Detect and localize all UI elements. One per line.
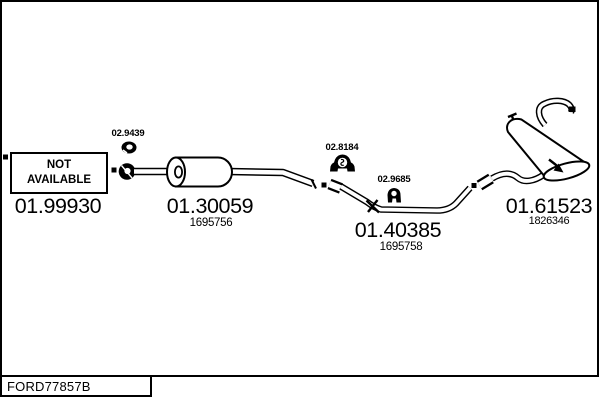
clamp-icon	[122, 142, 137, 154]
part-number-clamp[interactable]: 02.9439	[102, 128, 154, 139]
part-number-rubber-mount[interactable]: 02.8184	[316, 142, 368, 153]
center-muffler-outlet-pipe	[228, 172, 316, 189]
rear-connector-square	[472, 183, 477, 188]
tailpipe-tip-square	[569, 107, 576, 113]
catalog-code-box: FORD77857B	[0, 375, 152, 397]
rubber-mount-icon	[330, 155, 355, 172]
part-number-center-muffler[interactable]: 01.30059	[159, 194, 261, 219]
oe-ref-rear-muffler: 1826346	[498, 215, 600, 227]
left-connector-square	[3, 155, 8, 160]
pipe-clamp-icon	[119, 163, 136, 180]
oe-ref-center-muffler: 1695756	[160, 217, 262, 229]
rear-muffler-drawing	[507, 101, 591, 185]
front-connector-square	[112, 168, 117, 173]
exhaust-diagram: NOT AVAILABLE 01.99930 01.30059 1695756 …	[0, 0, 600, 400]
not-available-label: NOT AVAILABLE	[23, 158, 95, 188]
part-number-mid-pipe[interactable]: 01.40385	[347, 218, 449, 243]
center-muffler-drawing	[167, 158, 232, 187]
not-available-box: NOT AVAILABLE	[10, 152, 108, 194]
rear-inlet-pipe-drawing	[480, 174, 545, 186]
mid-connector-square	[322, 183, 327, 188]
catalog-code: FORD77857B	[2, 379, 91, 394]
part-number-front-pipe[interactable]: 01.99930	[7, 194, 109, 219]
part-number-hanger[interactable]: 02.9685	[368, 174, 420, 185]
hanger-icon	[388, 188, 402, 203]
oe-ref-mid-pipe: 1695758	[351, 241, 451, 253]
